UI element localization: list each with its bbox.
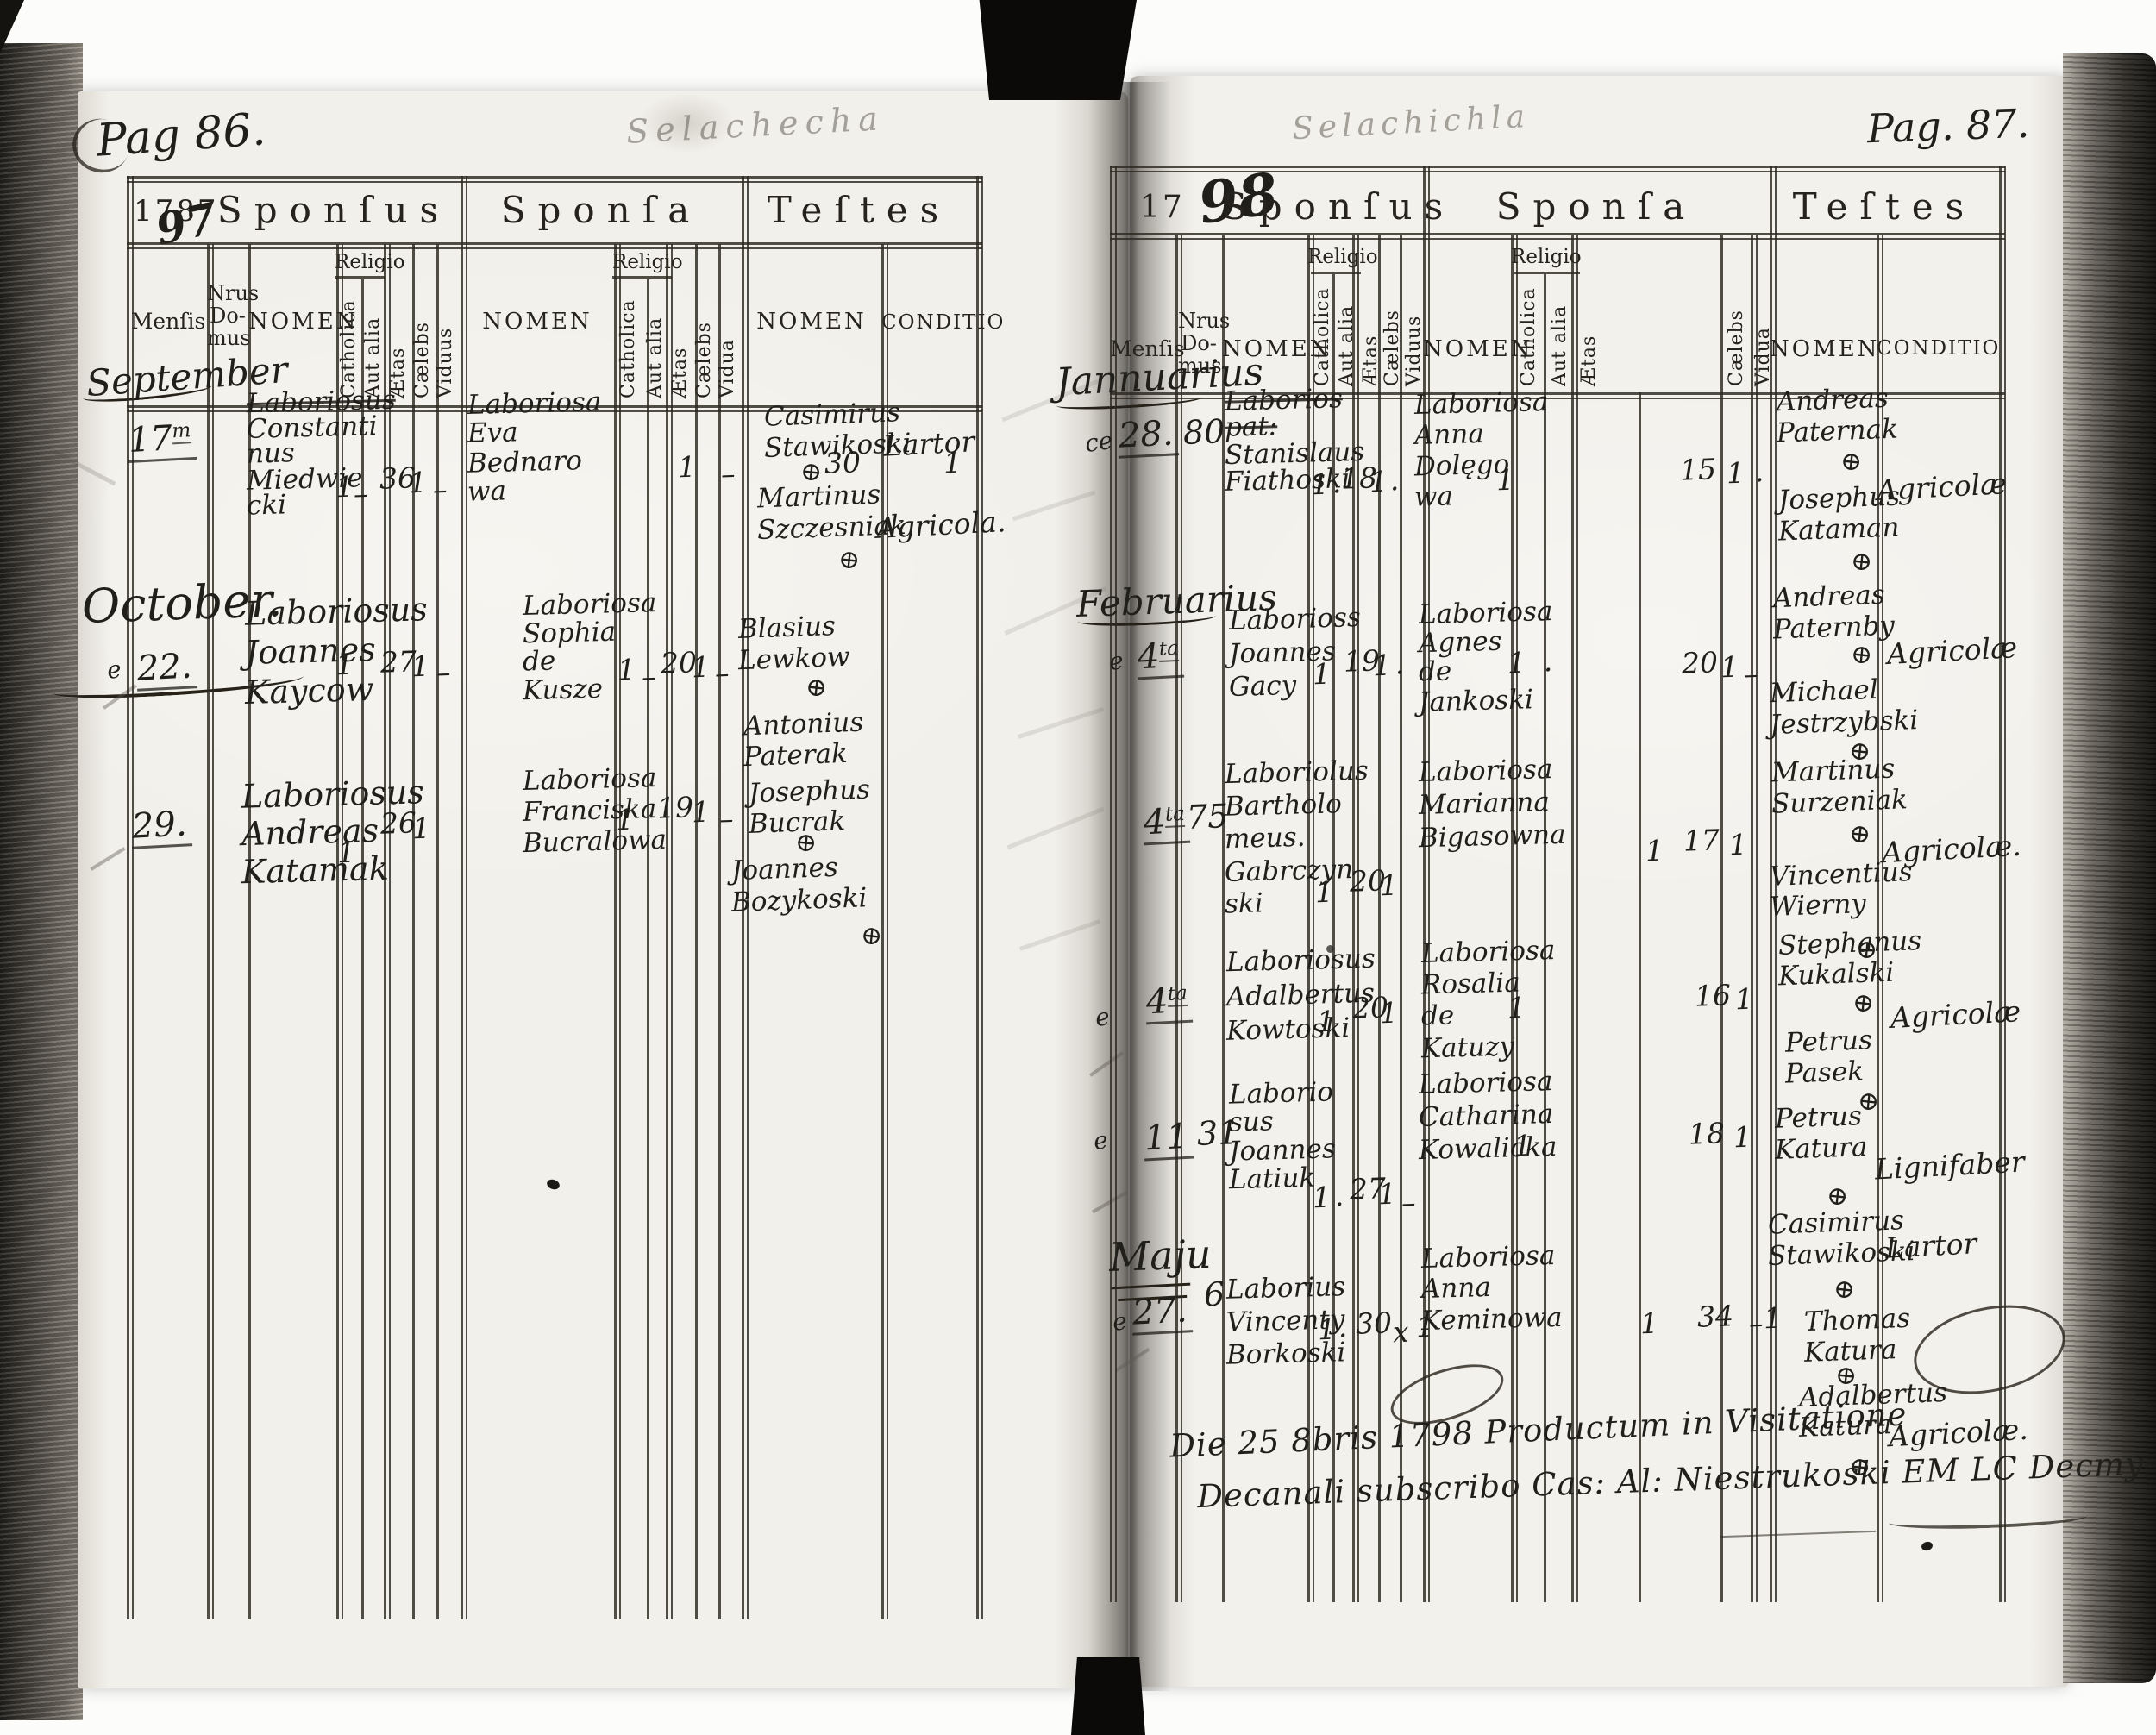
table-rule-line bbox=[1720, 235, 1723, 1602]
table-rule-line bbox=[127, 181, 982, 183]
witness-cross-mark: ⊕ bbox=[1851, 989, 1875, 1018]
sponsa-value-caelebs: 1 bbox=[1728, 830, 1747, 861]
table-rule-line bbox=[436, 244, 439, 1619]
entry-day: 29. bbox=[130, 805, 192, 849]
table-rule-line bbox=[1400, 235, 1402, 1602]
table-rule-line bbox=[389, 244, 391, 1619]
sponsa-value-catholica: 1 bbox=[615, 805, 634, 836]
witness-name: Surzeniak bbox=[1771, 786, 1908, 818]
sponsa-value-vidua: – bbox=[718, 805, 734, 835]
sponsus-name: Gabrczyn bbox=[1225, 855, 1354, 886]
sponsus-name: Katamak bbox=[241, 852, 390, 890]
sponsa-value-aetas: 18 bbox=[1688, 1118, 1725, 1149]
table-rule-line bbox=[461, 176, 463, 1619]
sponsa-value-vidua: 1 bbox=[1763, 1304, 1782, 1334]
sponsus-value-viduus: – bbox=[436, 658, 451, 688]
sponsus-value-caelebs: 1 bbox=[411, 652, 429, 682]
sponsus-name: cki bbox=[247, 491, 287, 520]
sponsus-value-catholica: 1 bbox=[335, 650, 354, 680]
entry-house-number: 80 bbox=[1182, 415, 1225, 451]
conditio-value: Lartor bbox=[882, 427, 975, 461]
sponsus-value-catholica: 1 bbox=[1317, 1315, 1336, 1345]
sponsus-name: Gacy bbox=[1229, 672, 1297, 702]
table-rule-line bbox=[1514, 272, 1580, 274]
witness-name: Joannes bbox=[730, 854, 838, 886]
witness-cross-mark: ⊕ bbox=[837, 546, 861, 575]
book-gutter-shadow bbox=[1088, 82, 1171, 1691]
table-rule-line bbox=[695, 244, 698, 1619]
sponsa-name: Bednaro bbox=[467, 447, 583, 478]
table-rule-line bbox=[1110, 233, 2005, 235]
sponsus-value-catholica: 1 bbox=[336, 838, 355, 868]
sponsa-value-catholica: 1 bbox=[1507, 993, 1526, 1024]
entry-day-suffix: m bbox=[172, 419, 191, 444]
sponsus-value-viduus: 1 bbox=[1415, 1312, 1434, 1343]
sponsa-name: Bigasowna bbox=[1419, 821, 1566, 853]
sponsa-name: Laboriosa bbox=[1421, 1242, 1556, 1274]
table-rule-line bbox=[1311, 272, 1361, 274]
sponsa-value-caelebs: 1 bbox=[691, 798, 710, 828]
table-rule-line bbox=[342, 244, 343, 1619]
entry-day: 4ta bbox=[1144, 982, 1194, 1025]
page-number-right: Pag. 87. bbox=[1866, 103, 2030, 150]
sponsus-name: Andreas bbox=[241, 814, 379, 852]
sponsa-value-aetas: 19 bbox=[656, 792, 693, 824]
sponsus-value-catholica: 1 bbox=[1312, 660, 1331, 690]
sponsus-name: pat: bbox=[1225, 412, 1278, 442]
sponsa-value-catholica: 1 bbox=[1513, 1131, 1532, 1162]
witness-name: Wierny bbox=[1769, 890, 1866, 921]
sponsa-name: Katuzy bbox=[1421, 1033, 1515, 1063]
sponsa-value-catholica: 1 bbox=[1507, 648, 1526, 679]
scanned-marriage-register: Pag 86. Pag. 87. Selachecha Selachichla … bbox=[0, 0, 2156, 1735]
table-rule-line bbox=[981, 176, 983, 1619]
sponsa-name: Eva bbox=[467, 418, 518, 448]
column-header-sponsus-left: Sponſus bbox=[207, 191, 461, 229]
sponsus-name: ski bbox=[1225, 889, 1263, 918]
sponsus-value-caelebs: 1 bbox=[1372, 651, 1391, 681]
sponsa-value-caelebs: – bbox=[1748, 1309, 1764, 1339]
conditio-value: Lartor bbox=[1884, 1229, 1977, 1263]
sponsus-name: Laboriolus bbox=[1225, 757, 1369, 789]
column-header-sponsa-right: Sponſa bbox=[1423, 188, 1770, 226]
sponsa-value-catholica: 1 bbox=[1639, 1309, 1658, 1339]
table-rule-line bbox=[1428, 166, 1430, 1602]
witness-cross-mark: ⊕ bbox=[859, 922, 883, 951]
year-printed-right: 17 bbox=[1140, 191, 1185, 224]
sponsus-name: Laborioss bbox=[1229, 604, 1362, 636]
table-rule-line bbox=[1110, 238, 2005, 240]
sponsa-name: Kusze bbox=[523, 675, 604, 705]
entry-day: 4ta bbox=[1136, 637, 1185, 680]
witness-name: Michael bbox=[1769, 676, 1878, 708]
sponsa-value-aut_alia: – bbox=[641, 662, 656, 692]
sponsa-value-aut_alia: – bbox=[720, 460, 736, 490]
conditio-value: Agricolæ bbox=[1886, 633, 2018, 670]
sponsa-name: Laboriosa bbox=[1414, 388, 1549, 420]
table-rule-line bbox=[1378, 235, 1381, 1602]
sponsus-value-aut_alia: – bbox=[353, 479, 368, 510]
table-rule-line bbox=[212, 244, 214, 1619]
sponsus-value-viduus: – bbox=[1401, 1188, 1416, 1218]
conditio-value: Agricolæ bbox=[1890, 997, 2021, 1034]
witness-name: Andreas bbox=[1772, 581, 1885, 613]
column-header-nomen-testes-left: NOMEN bbox=[742, 310, 881, 334]
column-header-testes-right: Teſtes bbox=[1770, 188, 1999, 226]
column-header-autalia-sponsa-right: Aut alia bbox=[1549, 291, 1571, 386]
column-header-testes-left: Teſtes bbox=[742, 191, 976, 229]
sponsa-value-caelebs: 1 bbox=[691, 653, 710, 683]
table-rule-line bbox=[671, 244, 673, 1619]
witness-name: Martinus bbox=[1771, 755, 1895, 788]
table-rule-line bbox=[1511, 235, 1514, 1602]
conditio-value: Agricolæ. bbox=[1881, 831, 2021, 868]
sponsus-value-viduus: – bbox=[432, 475, 448, 505]
sponsa-name: de bbox=[1421, 1002, 1455, 1031]
entry-day-suffix: ta bbox=[1167, 982, 1188, 1007]
sponsus-value-caelebs: 1 bbox=[408, 468, 427, 498]
table-rule-line bbox=[384, 244, 386, 1619]
column-header-sponsa-left: Sponſa bbox=[461, 191, 742, 229]
witness-name: Petrus bbox=[1774, 1102, 1862, 1133]
entry-day: 27. bbox=[1131, 1292, 1193, 1336]
sponsa-name: wa bbox=[1414, 482, 1454, 511]
table-rule-line bbox=[207, 244, 210, 1619]
sponsa-name: Anna bbox=[1421, 1274, 1492, 1304]
sponsa-name: Keminowa bbox=[1421, 1304, 1563, 1336]
table-rule-line bbox=[336, 244, 339, 1619]
entry-day-flourish: ce bbox=[1083, 428, 1114, 457]
column-header-religio-sponsus-right: Religio bbox=[1307, 247, 1357, 267]
witness-cross-mark: ⊕ bbox=[1849, 641, 1873, 670]
sponsa-name: de bbox=[523, 648, 556, 677]
sponsa-value-vidua: – bbox=[1743, 660, 1758, 690]
table-rule-line bbox=[612, 276, 672, 279]
table-rule-line bbox=[1571, 235, 1574, 1602]
sponsa-value-caelebs: 1 bbox=[1720, 653, 1739, 683]
sponsus-value-catholica: 1 bbox=[1314, 878, 1333, 908]
table-rule-line bbox=[614, 244, 617, 1619]
table-rule-line bbox=[127, 247, 982, 249]
column-header-catholica-sponsa-right: Catholica bbox=[1518, 266, 1540, 386]
sponsus-value-aut_alia: · bbox=[1338, 1321, 1348, 1351]
sponsa-name: Laboriosa bbox=[1419, 1068, 1553, 1099]
conditio-value: Agricola. bbox=[875, 507, 1006, 543]
month-label: Maju bbox=[1108, 1233, 1212, 1278]
sponsa-value-caelebs: 1 bbox=[1734, 985, 1753, 1015]
witness-name: Pasek bbox=[1784, 1057, 1864, 1088]
sponsus-name: Bartholo bbox=[1225, 790, 1343, 821]
sponsus-name: Laboriosus bbox=[1226, 945, 1376, 977]
column-header-nrus-right: Do- bbox=[1178, 333, 1219, 354]
entry-day: 11 bbox=[1143, 1118, 1194, 1162]
table-rule-line bbox=[1999, 166, 2002, 1602]
column-header-nomen-sponsa-left: NOMEN bbox=[461, 310, 614, 334]
entry-day: 28. bbox=[1117, 415, 1179, 459]
sponsa-name: Catharina bbox=[1419, 1100, 1554, 1132]
conditio-value: Lignifaber bbox=[1874, 1147, 2025, 1185]
witness-name: Lewkow bbox=[737, 643, 850, 675]
witness-name: Paterak bbox=[743, 740, 848, 772]
conditio-value: Agricolæ bbox=[1876, 469, 2008, 506]
witness-name: Petrus bbox=[1784, 1026, 1872, 1057]
sponsa-value-catholica: 1 bbox=[677, 453, 696, 483]
sponsus-value-caelebs: 1 bbox=[1379, 999, 1398, 1029]
sponsus-name: meus. bbox=[1225, 824, 1306, 854]
witness-name: Kukalski bbox=[1777, 959, 1894, 991]
table-rule-line bbox=[666, 244, 668, 1619]
sponsa-value-aetas: 16 bbox=[1694, 980, 1731, 1012]
book-spine-edge-left bbox=[0, 43, 83, 1720]
column-header-nrus-right: Nrus bbox=[1178, 310, 1219, 332]
sponsa-value-caelebs: 1 bbox=[1726, 459, 1745, 489]
sponsa-name: Laboriosa bbox=[1419, 598, 1553, 629]
table-rule-line bbox=[127, 242, 982, 245]
sponsus-name: Laboriosus bbox=[245, 592, 429, 631]
witness-name: Casimirus bbox=[763, 398, 900, 431]
column-header-mensis-left: Menſis bbox=[129, 310, 207, 333]
entry-house-number: 6 bbox=[1203, 1278, 1225, 1313]
witness-name: Bozykoski bbox=[730, 884, 867, 917]
table-rule-line bbox=[619, 244, 621, 1619]
column-header-autalia-sponsus-right: Aut alia bbox=[1336, 291, 1358, 386]
table-rule-line bbox=[1576, 235, 1578, 1602]
table-rule-line bbox=[976, 176, 979, 1619]
column-header-catholica-sponsus-right: Catholica bbox=[1312, 266, 1334, 386]
sponsa-name: Marianna bbox=[1419, 788, 1551, 820]
sponsus-value-catholica: 1 bbox=[1310, 470, 1329, 500]
column-header-conditio-right: CONDITIO bbox=[1877, 338, 1999, 359]
sponsus-value-catholica: 1 bbox=[1316, 1007, 1335, 1037]
witness-cross-mark: ⊕ bbox=[804, 673, 828, 703]
sponsus-value-caelebs: 1 bbox=[1377, 1180, 1396, 1210]
sponsus-value-viduus: · bbox=[1395, 658, 1405, 688]
sponsus-name: Laborio bbox=[1229, 1078, 1334, 1109]
witness-cross-mark: ⊕ bbox=[1839, 448, 1863, 477]
sponsa-value-aetas: 15 bbox=[1679, 454, 1716, 485]
witness-name: Jestrzybski bbox=[1769, 706, 1918, 740]
table-rule-line bbox=[1110, 166, 2005, 168]
witness-name: Josephus bbox=[748, 776, 870, 808]
sponsus-value-catholica: 1 bbox=[1312, 1183, 1331, 1213]
sponsa-value-catholica: 1 bbox=[1495, 466, 1514, 496]
sponsus-value-aut_alia: · bbox=[1334, 1190, 1344, 1220]
witness-name: Thomas bbox=[1803, 1305, 1910, 1337]
sponsus-name: Laborius bbox=[1226, 1273, 1346, 1304]
conditio-value: Agricolæ. bbox=[1888, 1415, 2028, 1452]
sponsa-name: Laboriosa bbox=[1421, 936, 1556, 968]
witness-name: Paternby bbox=[1772, 612, 1895, 644]
table-rule-line bbox=[647, 279, 649, 1619]
binding-strip-top bbox=[973, 0, 1137, 100]
entry-day-suffix: ta bbox=[1164, 803, 1185, 828]
entry-day: 4ta bbox=[1142, 803, 1191, 846]
witness-cross-mark: ⊕ bbox=[1849, 548, 1873, 577]
sponsa-value-aetas: 17 bbox=[1683, 825, 1720, 856]
sponsus-name: sus bbox=[1229, 1107, 1275, 1137]
entry-day-suffix: ta bbox=[1158, 637, 1179, 662]
column-header-caelebs-sponsa-right: Cælebs bbox=[1726, 313, 1748, 386]
sponsa-name: Jankoski bbox=[1419, 686, 1534, 717]
witness-name: Paternak bbox=[1776, 416, 1898, 448]
table-rule-line bbox=[335, 276, 385, 279]
binding-strip-bottom bbox=[1071, 1657, 1145, 1735]
sponsus-value-caelebs: x bbox=[1392, 1318, 1409, 1348]
sponsus-value-caelebs: 1 bbox=[1379, 871, 1398, 901]
witness-name: Blasius bbox=[737, 612, 836, 643]
table-rule-line bbox=[1110, 171, 2005, 172]
sponsa-value-catholica: 1 bbox=[617, 655, 636, 686]
witness-cross-mark: ⊕ bbox=[1832, 1275, 1856, 1305]
table-rule-line bbox=[1423, 166, 1426, 1602]
column-header-aetas-sponsa-right: Ætas bbox=[1578, 326, 1601, 386]
sponsus-name: Latiuk bbox=[1229, 1164, 1316, 1194]
column-header-caelebs-sponsus-left: Cælebs bbox=[411, 325, 434, 398]
table-rule-line bbox=[1181, 235, 1182, 1602]
sponsa-name: Bucralowa bbox=[523, 826, 667, 858]
sponsa-value-vidua: – bbox=[714, 659, 730, 689]
sponsa-name: Anna bbox=[1414, 420, 1485, 450]
sponsa-name: Laboriosa bbox=[523, 589, 657, 621]
witness-name: Martinus bbox=[756, 481, 881, 514]
table-rule-line bbox=[412, 244, 415, 1619]
entry-day: 22. bbox=[135, 648, 197, 692]
sponsa-value-vidua: · bbox=[1754, 466, 1764, 496]
sponsa-name: de bbox=[1419, 658, 1452, 687]
sponsa-name: Agnes bbox=[1419, 628, 1502, 658]
witness-cross-mark: ⊕ bbox=[1847, 820, 1871, 849]
column-header-conditio-left: CONDITIO bbox=[881, 312, 976, 333]
column-header-nomen-testes-right: NOMEN bbox=[1770, 338, 1877, 361]
sponsa-name: Rosalia bbox=[1421, 969, 1521, 1000]
table-rule-line bbox=[127, 176, 982, 179]
sponsa-value-aut_alia: · bbox=[1543, 655, 1553, 686]
column-header-religio-sponsa-left: Religio bbox=[612, 252, 672, 272]
sponsus-value-viduus: · bbox=[1389, 474, 1400, 504]
sponsus-name: Joannes bbox=[245, 633, 377, 671]
witness-name: Antonius bbox=[743, 709, 863, 741]
sponsa-name: Sophia bbox=[523, 618, 617, 648]
witness-name: Stephanus bbox=[1777, 927, 1921, 960]
column-header-religio-sponsa-right: Religio bbox=[1511, 247, 1576, 267]
table-rule-line bbox=[2004, 166, 2006, 1602]
entry-day: 17m bbox=[127, 419, 197, 463]
witness-name: Andreas bbox=[1776, 385, 1889, 417]
sponsa-name: wa bbox=[467, 477, 507, 506]
table-rule-line bbox=[1751, 235, 1753, 1602]
witness-name: Katura bbox=[1774, 1133, 1867, 1164]
sponsa-name: Franciska bbox=[523, 795, 657, 827]
entry-house-number: 75 bbox=[1186, 799, 1229, 836]
column-header-sponsus-right: Sponſus bbox=[1222, 188, 1423, 226]
sponsa-value-catholica: 1 bbox=[1645, 836, 1664, 867]
table-rule-line bbox=[1516, 235, 1518, 1602]
sponsa-name: Kowalicka bbox=[1419, 1133, 1557, 1165]
sponsus-name: Joannes bbox=[1229, 1135, 1337, 1166]
sponsa-name: Laboriosa bbox=[467, 388, 602, 420]
table-rule-line bbox=[1756, 235, 1758, 1602]
table-rule-line bbox=[718, 244, 721, 1619]
sponsa-name: Laboriosa bbox=[1419, 755, 1553, 787]
sponsus-name: Kaycow bbox=[245, 673, 374, 711]
book-fore-edge-right bbox=[2063, 53, 2156, 1683]
sponsus-value-aetas: 30 bbox=[1355, 1308, 1392, 1339]
sponsa-value-caelebs: 1 bbox=[1733, 1123, 1752, 1153]
column-header-nomen-sponsus-left: NOMEN bbox=[248, 310, 336, 334]
sponsus-value-caelebs: 1 bbox=[411, 814, 430, 844]
sponsa-value-aetas: 20 bbox=[1681, 648, 1718, 679]
sponsus-value-caelebs: 1 bbox=[1369, 467, 1388, 498]
column-header-nomen-sponsa-right: NOMEN bbox=[1423, 338, 1511, 361]
sponsa-value-aetas: 34 bbox=[1696, 1301, 1733, 1332]
sponsus-value-catholica: 1 bbox=[335, 473, 354, 503]
sponsa-name: Laboriosa bbox=[523, 764, 657, 796]
witness-name: Kataman bbox=[1777, 514, 1899, 546]
